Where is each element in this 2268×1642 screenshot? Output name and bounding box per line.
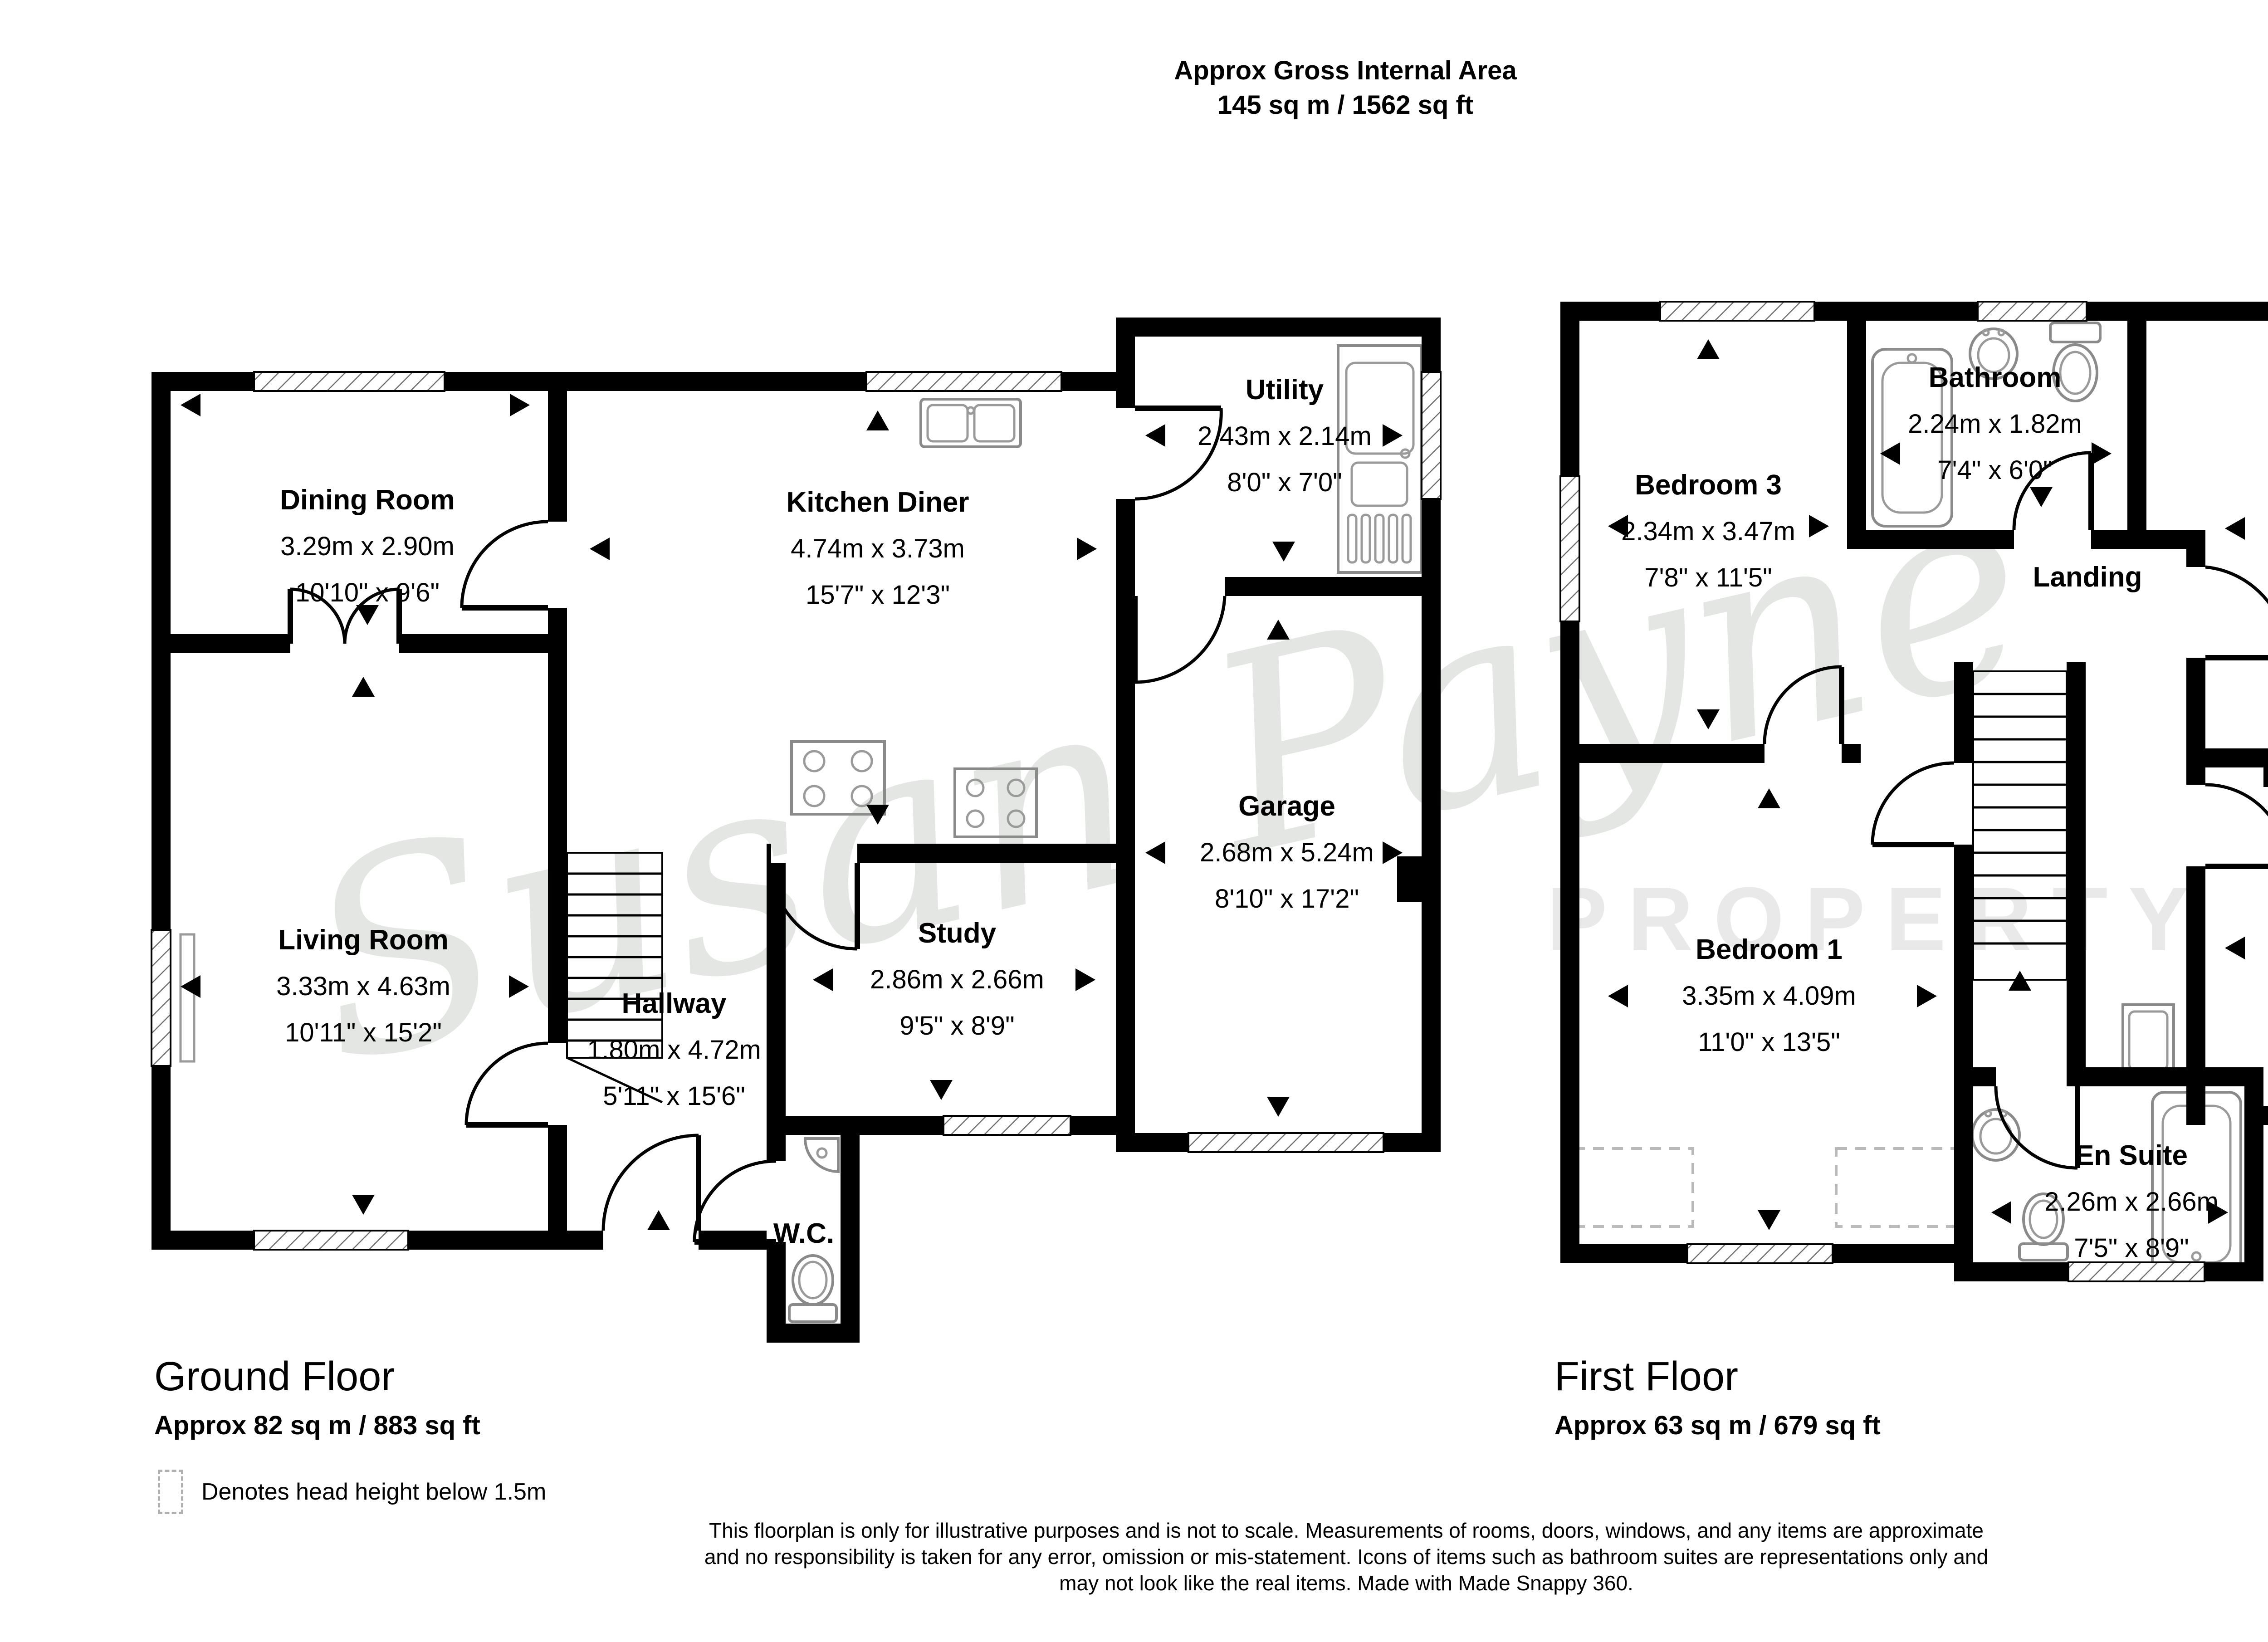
room-label-garage: Garage 2.68m x 5.24m 8'10" x 17'2": [1200, 783, 1374, 922]
head-height-legend-swatch: [158, 1470, 183, 1514]
room-label-bedroom-3: Bedroom 3 2.34m x 3.47m 7'8" x 11'5": [1621, 462, 1795, 601]
wc-corner-sink-icon: [805, 1139, 838, 1172]
head-height-legend-text: Denotes head height below 1.5m: [183, 1478, 546, 1505]
gross-area-value: 145 sq m / 1562 sq ft: [1174, 88, 1516, 122]
disclaimer-line-3: may not look like the real items. Made w…: [704, 1570, 1988, 1596]
radiator-icon: [181, 934, 194, 1061]
wc-toilet-icon: [789, 1256, 836, 1322]
room-label-study: Study 2.86m x 2.66m 9'5" x 8'9": [870, 910, 1044, 1049]
room-label-hallway: Hallway 1.80m x 4.72m 5'11" x 15'6": [587, 981, 761, 1119]
gross-area-heading: Approx Gross Internal Area: [1174, 54, 1516, 88]
first-floor-area: Approx 63 sq m / 679 sq ft: [1554, 1404, 1881, 1447]
page-title: Approx Gross Internal Area 145 sq m / 15…: [1174, 54, 1516, 122]
room-label-living-room: Living Room 3.33m x 4.63m 10'11" x 15'2": [276, 917, 450, 1056]
first-floor-caption: First Floor Approx 63 sq m / 679 sq ft: [1554, 1349, 1881, 1447]
cupboard-icon: [2123, 1005, 2174, 1076]
ground-floor-title: Ground Floor: [154, 1349, 480, 1404]
room-label-dining-room: Dining Room 3.29m x 2.90m 10'10" x 9'6": [280, 477, 455, 616]
disclaimer: This floorplan is only for illustrative …: [704, 1517, 1988, 1596]
room-label-wc: W.C.: [773, 1211, 834, 1257]
room-label-bedroom-1: Bedroom 1 3.35m x 4.09m 11'0" x 13'5": [1682, 927, 1856, 1065]
room-label-utility: Utility 2.43m x 2.14m 8'0" x 7'0": [1198, 367, 1372, 506]
room-label-en-suite: En Suite 2.26m x 2.66m 7'5" x 8'9": [2044, 1133, 2219, 1271]
head-height-legend: Denotes head height below 1.5m: [158, 1470, 546, 1514]
watermark-caption-text: PROPERTY: [1547, 869, 2209, 970]
disclaimer-line-1: This floorplan is only for illustrative …: [704, 1517, 1988, 1544]
disclaimer-line-2: and no responsibility is taken for any e…: [704, 1544, 1988, 1570]
first-floor-title: First Floor: [1554, 1349, 1881, 1404]
room-label-bathroom: Bathroom 2.24m x 1.82m 7'4" x 6'0": [1908, 355, 2082, 494]
floorplan-page: Susan Payne PROPERTY: [0, 0, 2268, 1642]
ground-floor-caption: Ground Floor Approx 82 sq m / 883 sq ft: [154, 1349, 480, 1447]
room-label-kitchen-diner: Kitchen Diner 4.74m x 3.73m 15'7" x 12'3…: [786, 479, 969, 618]
room-label-landing: Landing: [2033, 554, 2142, 601]
kitchen-sink-icon: [921, 399, 1021, 447]
ground-floor-area: Approx 82 sq m / 883 sq ft: [154, 1404, 480, 1447]
